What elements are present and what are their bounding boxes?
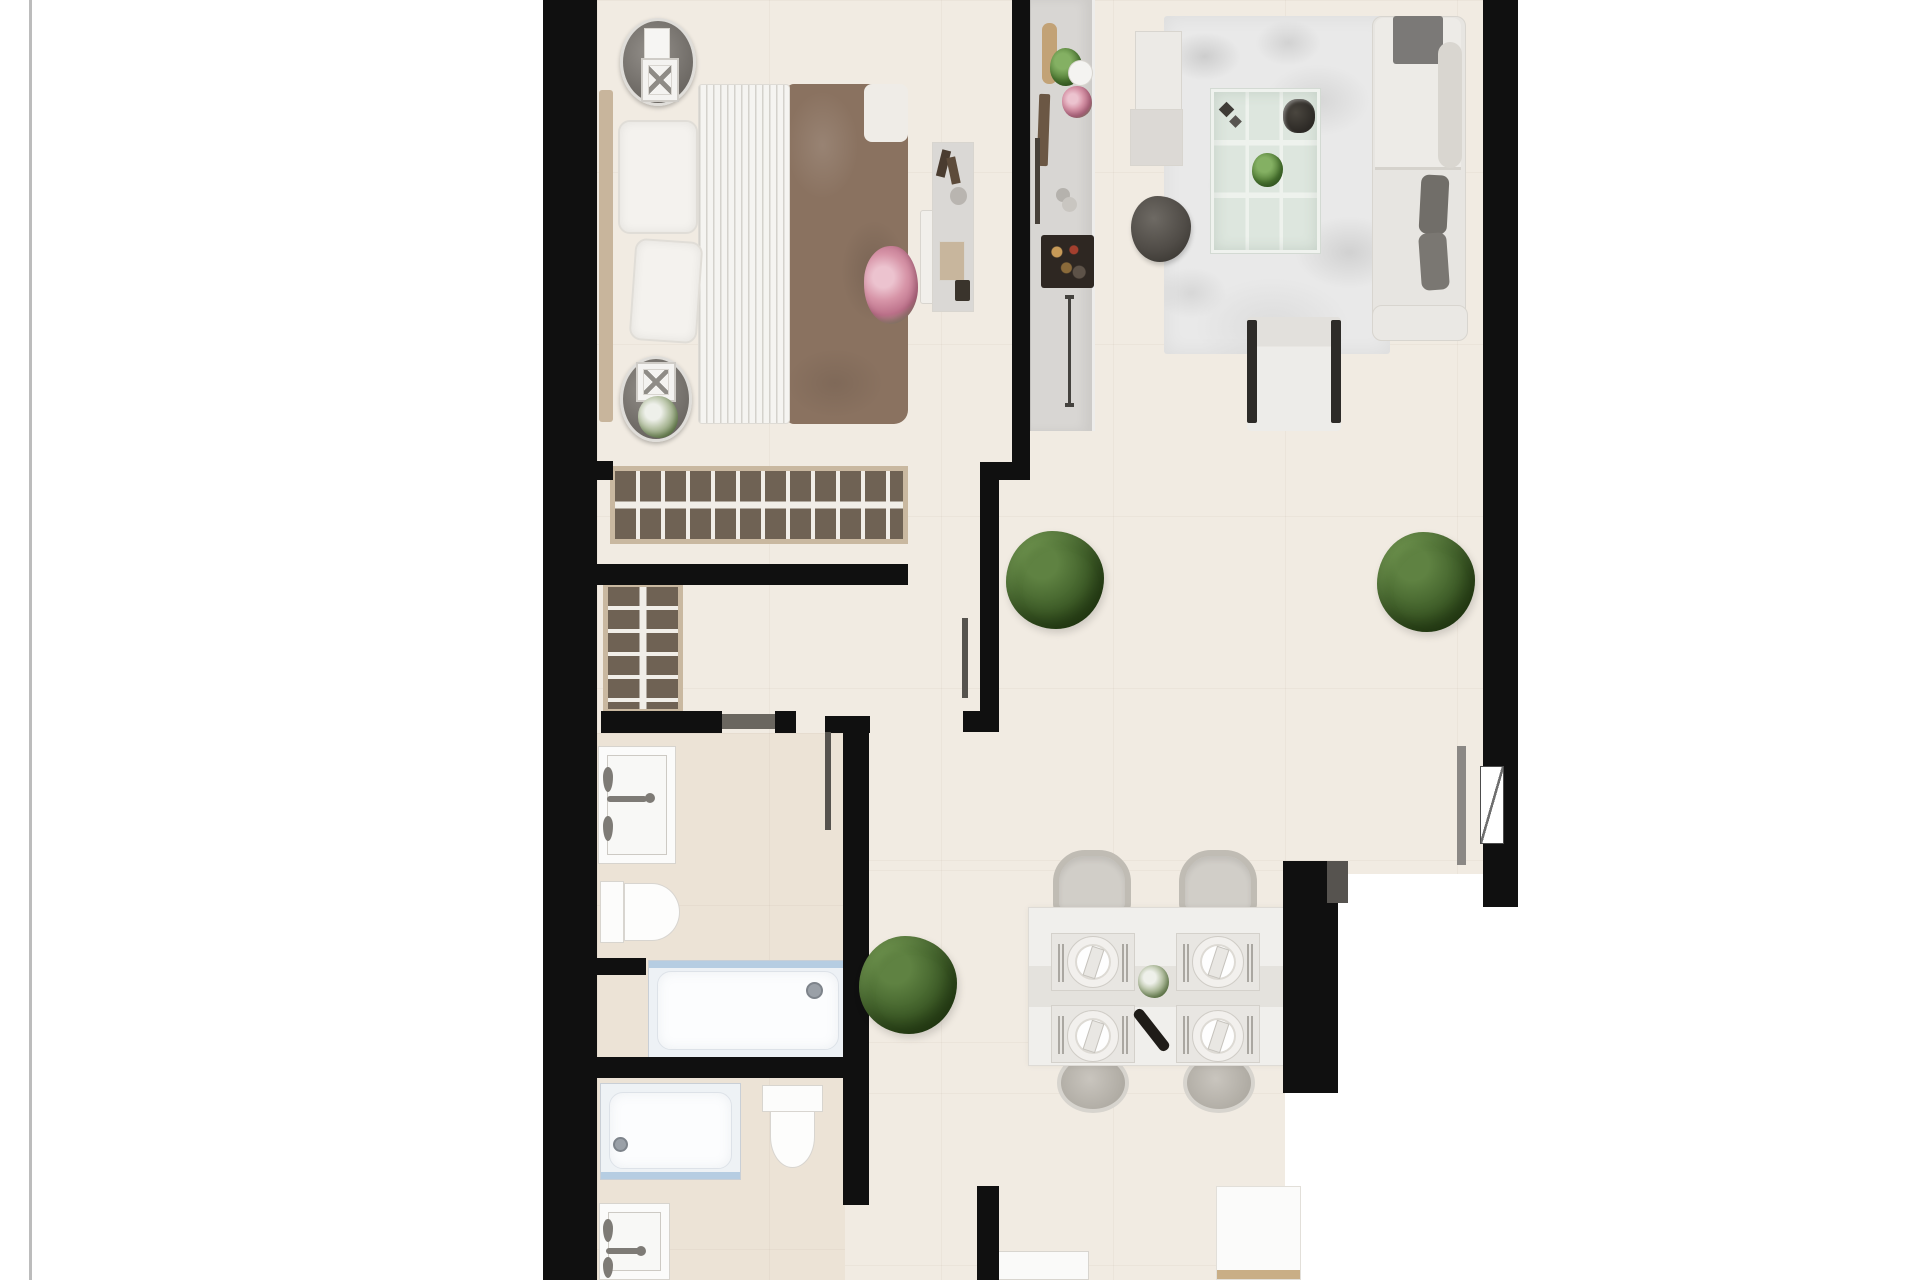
plate-top-right bbox=[1192, 936, 1244, 988]
sofa-blanket bbox=[1393, 16, 1443, 64]
kitchen-cabinet-handle bbox=[1065, 295, 1074, 407]
window-jamb-line bbox=[1457, 746, 1466, 865]
bathroom1-faucet-dot bbox=[645, 793, 655, 803]
wall-exterior-left bbox=[543, 0, 597, 1280]
bed-flower-bouquet bbox=[864, 246, 918, 324]
sofa-pillow-2 bbox=[1418, 232, 1450, 291]
coffee-table-deco bbox=[1218, 100, 1247, 134]
plant-bath-corridor bbox=[859, 936, 957, 1034]
bed-pillow-bottom bbox=[629, 238, 704, 344]
bathroom1-vanity bbox=[598, 746, 676, 864]
window-right bbox=[1480, 766, 1504, 844]
bathroom2-toilet-tank bbox=[762, 1085, 823, 1112]
wall-bathroom-divider bbox=[597, 1057, 860, 1078]
dresser-mirror bbox=[950, 187, 967, 205]
bottom-right-cabinet bbox=[1216, 1186, 1301, 1280]
living-sideboard bbox=[1135, 31, 1182, 118]
plate-top-left bbox=[1067, 936, 1119, 988]
kitchen-flowers bbox=[1062, 86, 1092, 118]
wall-toilet-stub bbox=[597, 958, 646, 975]
dining-chair-top-left bbox=[1053, 850, 1131, 914]
sofa-pillow-1 bbox=[1418, 174, 1449, 234]
page-border-line bbox=[29, 0, 32, 1280]
dresser-tray bbox=[939, 241, 965, 281]
bathroom2-faucet-dot bbox=[636, 1246, 646, 1256]
bathroom1-toilet-bowl bbox=[624, 883, 680, 941]
dresser-box bbox=[955, 280, 970, 301]
bathroom1-faucet-spout bbox=[607, 796, 647, 802]
door-leaf-bedroom bbox=[962, 618, 968, 698]
kitchen-bowl bbox=[1068, 60, 1093, 86]
bathroom1-toilet-tank bbox=[600, 881, 624, 943]
bathroom1-bathtub bbox=[648, 960, 848, 1059]
floor-plan-canvas bbox=[0, 0, 1920, 1280]
shower-tray-drain bbox=[613, 1137, 628, 1152]
wall-hall-upper bbox=[980, 478, 999, 732]
armchair bbox=[1247, 317, 1341, 431]
wardrobe-tall bbox=[603, 582, 683, 714]
wall-bath-top-b bbox=[722, 714, 775, 729]
sofa-armrest bbox=[1372, 305, 1468, 341]
bed-duvet bbox=[698, 84, 790, 424]
wall-bottom-stub bbox=[977, 1186, 999, 1280]
coffee-table-plant bbox=[1252, 153, 1283, 187]
sofa-back-cushion bbox=[1438, 42, 1462, 168]
living-side-table bbox=[1130, 109, 1183, 166]
wardrobe-long bbox=[610, 466, 908, 544]
plate-bottom-right bbox=[1192, 1010, 1244, 1062]
kitchen-dark-tray bbox=[1041, 235, 1094, 288]
wall-bedroom-stub bbox=[587, 461, 613, 480]
plant-living-room bbox=[1377, 532, 1475, 632]
plant-hallway bbox=[1006, 531, 1104, 629]
bathtub-drain bbox=[806, 982, 823, 999]
door-leaf-bathroom bbox=[825, 732, 831, 830]
wall-bath-top-c bbox=[775, 711, 796, 733]
wall-dressing-top bbox=[597, 564, 908, 585]
kitchen-utensil bbox=[1035, 138, 1040, 224]
nightstand-top-book bbox=[644, 28, 670, 62]
wall-bedroom-divider bbox=[1012, 0, 1030, 480]
wall-hall-foot bbox=[963, 711, 999, 732]
table-centerpiece bbox=[1138, 965, 1169, 998]
nightstand-bottom-plant bbox=[638, 396, 678, 438]
coffee-table-bowl bbox=[1283, 99, 1315, 133]
wall-dining-cap bbox=[1327, 861, 1348, 903]
kitchen-cup-2 bbox=[1062, 197, 1077, 212]
plate-bottom-left bbox=[1067, 1010, 1119, 1062]
nightstand-top-lamp bbox=[641, 58, 679, 102]
wall-bath-top-a bbox=[601, 711, 722, 733]
dining-chair-top-right bbox=[1179, 850, 1257, 914]
bathroom2-shower-tray bbox=[600, 1083, 741, 1180]
bed-headboard bbox=[599, 90, 613, 422]
bottom-center-cabinet bbox=[996, 1251, 1089, 1280]
bed-pillow-top bbox=[618, 120, 698, 234]
bed-fold-pillow bbox=[864, 84, 908, 142]
